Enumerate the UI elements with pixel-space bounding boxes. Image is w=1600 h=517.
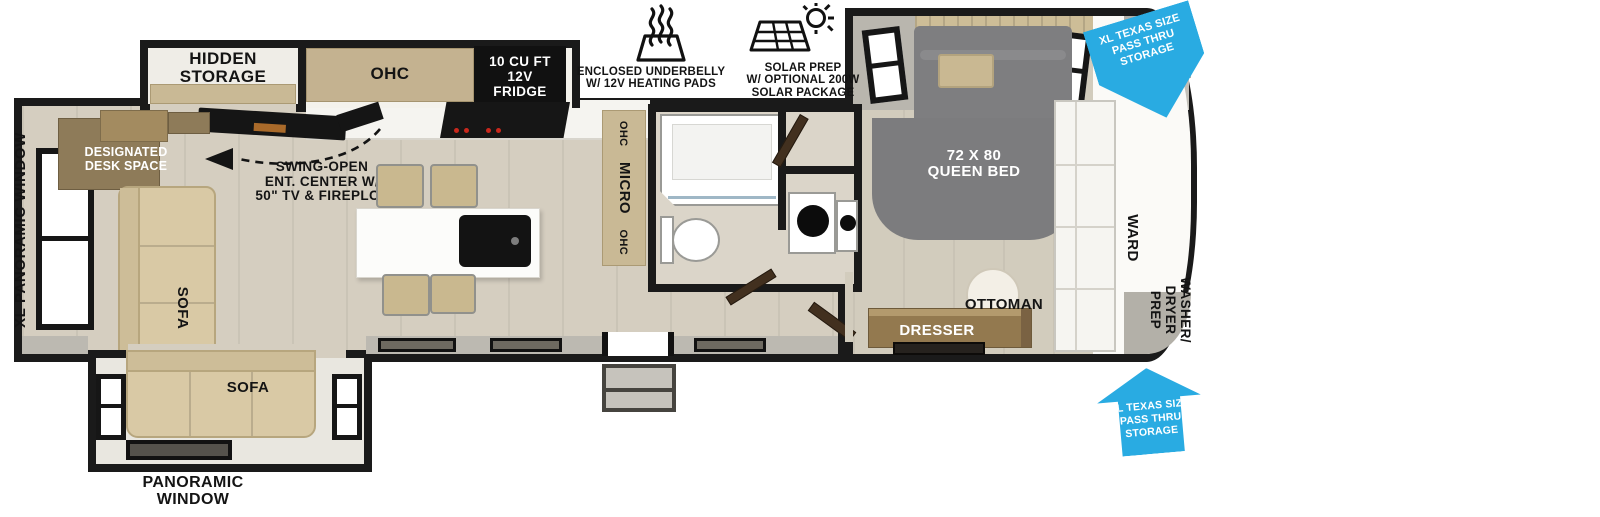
fridge-label-line: FRIDGE [474, 84, 566, 99]
desk-upper [100, 110, 168, 142]
bottom-window [490, 338, 562, 352]
ottoman-label: OTTOMAN [948, 297, 1060, 313]
dresser-label: DRESSER [877, 323, 997, 339]
galley-strip-ohc: OHC [617, 121, 629, 147]
heating-pads-icon [628, 4, 694, 64]
hidden-storage-label: HIDDEN STORAGE [146, 50, 300, 87]
desk-side [168, 112, 210, 134]
range-cooktop [440, 102, 570, 138]
solar-caption: SOLAR PREP W/ OPTIONAL 200W SOLAR PACKAG… [712, 62, 894, 99]
washer-door [797, 205, 829, 237]
bottom-window [694, 338, 766, 352]
slide-window-right [332, 374, 362, 440]
solar-prep-icon [746, 2, 838, 64]
shower [660, 114, 784, 206]
dryer-unit [836, 200, 858, 252]
pass-thru-bottom-label: XL TEXAS SIZE PASS THRU STORAGE [1097, 396, 1204, 444]
burner [486, 128, 491, 133]
bar-stool [376, 164, 424, 208]
panoramic-window-label-line: WINDOW [118, 491, 268, 508]
panoramic-window-label-line: PANORAMIC [118, 474, 268, 491]
bar-stool [430, 274, 476, 314]
step-tread-line [606, 388, 672, 392]
wardrobe-divider-line [1075, 102, 1077, 350]
rv-floorplan-diagram: HIDDEN STORAGE OHC 10 CU FT 12V FRIDGE S… [0, 0, 1600, 517]
burner [454, 128, 459, 133]
hidden-storage-label-line: HIDDEN [146, 50, 300, 68]
bar-stool [430, 164, 478, 208]
wardrobe-shelf-line [1056, 288, 1114, 290]
entry-steps [602, 364, 676, 412]
burner [464, 128, 469, 133]
wardrobe-shelf-line [1056, 164, 1114, 166]
washer-unit [788, 192, 836, 254]
galley-cabinet-strip: OHC MICRO OHC [602, 110, 646, 266]
rear-window-label: XL PANORAMIC WINDOW [13, 110, 35, 350]
dryer-door [840, 215, 856, 231]
kitchen-island [356, 208, 540, 278]
desk-label-line: DESK SPACE [64, 160, 188, 174]
sofa-cushion-line [189, 372, 191, 436]
solar-caption-line: W/ OPTIONAL 200W [712, 74, 894, 86]
bed-pillow [938, 54, 994, 88]
toilet [672, 218, 720, 262]
sink-faucet [511, 237, 519, 245]
slide-window-left [96, 374, 126, 440]
fridge-label-line: 10 CU FT [474, 54, 566, 69]
fridge-label-line: 12V [474, 69, 566, 84]
washer-dryer-prep-line: DRYER [1162, 260, 1177, 360]
queen-bed-label-line: QUEEN BED [872, 164, 1076, 180]
panoramic-window-label: PANORAMIC WINDOW [118, 474, 268, 509]
hidden-storage-cabinet [150, 84, 296, 104]
island-sink [459, 215, 531, 267]
entry-door-opening [602, 332, 674, 356]
solar-caption-line: SOLAR PACKAGE [712, 87, 894, 99]
galley-strip-ohc: OHC [617, 229, 629, 255]
bar-stool [382, 274, 430, 316]
washer-dryer-prep-line: WASHER/ [1177, 260, 1192, 360]
washer-dryer-prep-label: WASHER/ DRYER PREP [1134, 260, 1192, 360]
slide-window-bottom [126, 440, 232, 460]
sofa-side-label: SOFA [170, 268, 190, 348]
sofa-slide-label: SOFA [198, 380, 298, 396]
pass-thru-arrow-bottom: XL TEXAS SIZE PASS THRU STORAGE [1094, 364, 1205, 459]
shower-glass [668, 196, 776, 199]
shower-pan [672, 124, 772, 180]
burner [496, 128, 501, 133]
galley-strip-micro: MICRO [616, 162, 633, 214]
fridge-label: 10 CU FT 12V FRIDGE [474, 54, 566, 99]
queen-bed-label: 72 X 80 QUEEN BED [872, 148, 1076, 180]
closet-wall [778, 166, 862, 174]
overhead-cabinet: OHC [306, 48, 474, 102]
hidden-storage-label-line: STORAGE [146, 68, 300, 86]
sofa-backrest [128, 352, 314, 372]
dresser-end [1021, 309, 1031, 347]
bedroom-door-opening [845, 272, 853, 342]
bottom-window [378, 338, 456, 352]
solar-caption-line: SOLAR PREP [712, 62, 894, 74]
window-bar [336, 404, 358, 408]
queen-bed-label-line: 72 X 80 [872, 148, 1076, 164]
wardrobe-shelf-line [1056, 226, 1114, 228]
desk-label: DESIGNATED DESK SPACE [64, 146, 188, 173]
washer-dryer-prep-line: PREP [1147, 260, 1162, 360]
window-bar [100, 404, 122, 408]
sofa-cushion-line [140, 245, 214, 247]
bottom-wall-band-left [22, 336, 88, 354]
sofa-side [118, 186, 216, 362]
queen-bed-head [914, 26, 1072, 130]
desk-label-line: DESIGNATED [64, 146, 188, 160]
galley-strip-label: OHC MICRO OHC [616, 121, 632, 255]
wardrobe [1054, 100, 1116, 352]
bedroom-floor-mat [893, 342, 985, 355]
queen-bed: 72 X 80 QUEEN BED [872, 118, 1076, 240]
sofa-backrest [120, 188, 140, 360]
ohc-label: OHC [307, 65, 473, 83]
window-bar [41, 236, 89, 241]
